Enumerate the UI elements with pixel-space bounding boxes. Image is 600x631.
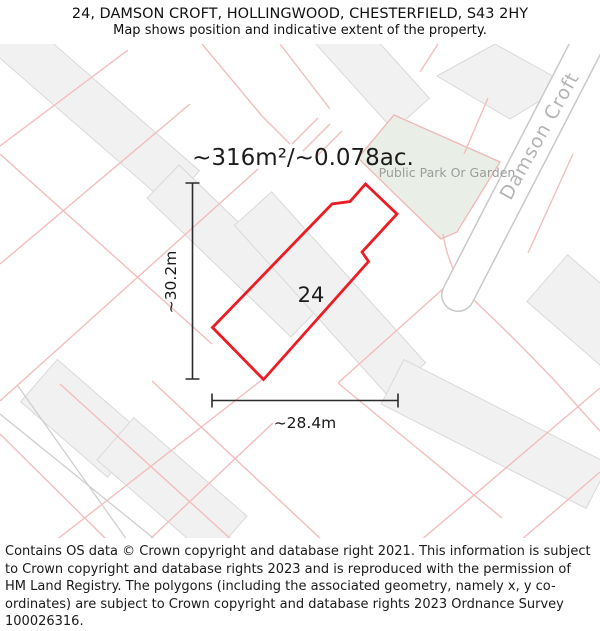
map-header: 24, DAMSON CROFT, HOLLINGWOOD, CHESTERFI… bbox=[0, 0, 600, 44]
park-label: Public Park Or Garden bbox=[379, 165, 516, 180]
building-bottom-left-2 bbox=[97, 418, 247, 538]
map-canvas: ~316m²/~0.078ac. Public Park Or Garden D… bbox=[0, 44, 600, 538]
horizontal-dimension-line bbox=[212, 394, 398, 408]
plot-number-label: 24 bbox=[298, 283, 325, 307]
copyright-footer: Contains OS data © Crown copyright and d… bbox=[0, 538, 600, 631]
width-dimension-label: ~28.4m bbox=[274, 414, 337, 432]
map-svg: ~316m²/~0.078ac. Public Park Or Garden D… bbox=[0, 44, 600, 538]
height-dimension-label: ~30.2m bbox=[162, 251, 180, 314]
copyright-text: Contains OS data © Crown copyright and d… bbox=[5, 544, 591, 629]
map-description: Map shows position and indicative extent… bbox=[0, 23, 600, 38]
building-right-edge bbox=[527, 255, 600, 367]
property-address-title: 24, DAMSON CROFT, HOLLINGWOOD, CHESTERFI… bbox=[0, 6, 600, 23]
